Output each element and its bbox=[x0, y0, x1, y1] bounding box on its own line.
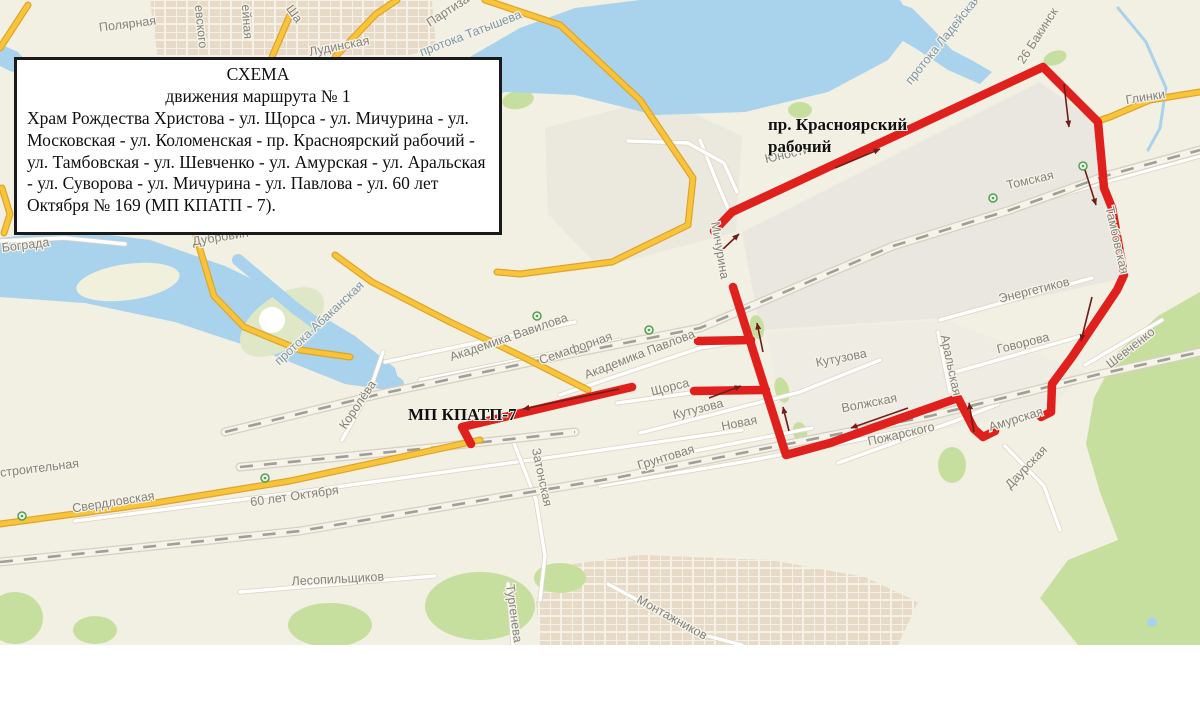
bus-stop-icon bbox=[264, 477, 267, 480]
bottom-white-strip bbox=[0, 645, 1200, 726]
route-info-title: СХЕМА bbox=[27, 64, 489, 86]
green-area bbox=[73, 616, 117, 644]
bus-stop-icon bbox=[1082, 165, 1085, 168]
green-area bbox=[938, 447, 966, 483]
kpatp-depot-label: МП КПАТП-7 bbox=[408, 405, 517, 424]
krasnoyarsky-rabochy-label: пр. Красноярский bbox=[768, 115, 907, 134]
bus-stop-icon bbox=[21, 515, 24, 518]
route-info-box: СХЕМА движения маршрута № 1 Храм Рождест… bbox=[14, 57, 502, 235]
route-info-description: Храм Рождества Христова - ул. Щорса - ул… bbox=[27, 108, 489, 217]
krasnoyarsky-rabochy-label: рабочий bbox=[768, 137, 832, 156]
bus-stop-icon bbox=[648, 329, 651, 332]
bus-stop-icon bbox=[536, 315, 539, 318]
bus-stop-icon bbox=[992, 197, 995, 200]
green-area bbox=[288, 603, 372, 647]
pond bbox=[1147, 617, 1157, 627]
street-label: ейная bbox=[239, 4, 255, 39]
route-schema-screenshot: ПолярнаяевскогоейнаяШаЛудинскаяПартизапр… bbox=[0, 0, 1200, 726]
pond bbox=[259, 307, 285, 333]
bus-route-line bbox=[698, 340, 751, 341]
route-info-subtitle: движения маршрута № 1 bbox=[27, 86, 489, 108]
